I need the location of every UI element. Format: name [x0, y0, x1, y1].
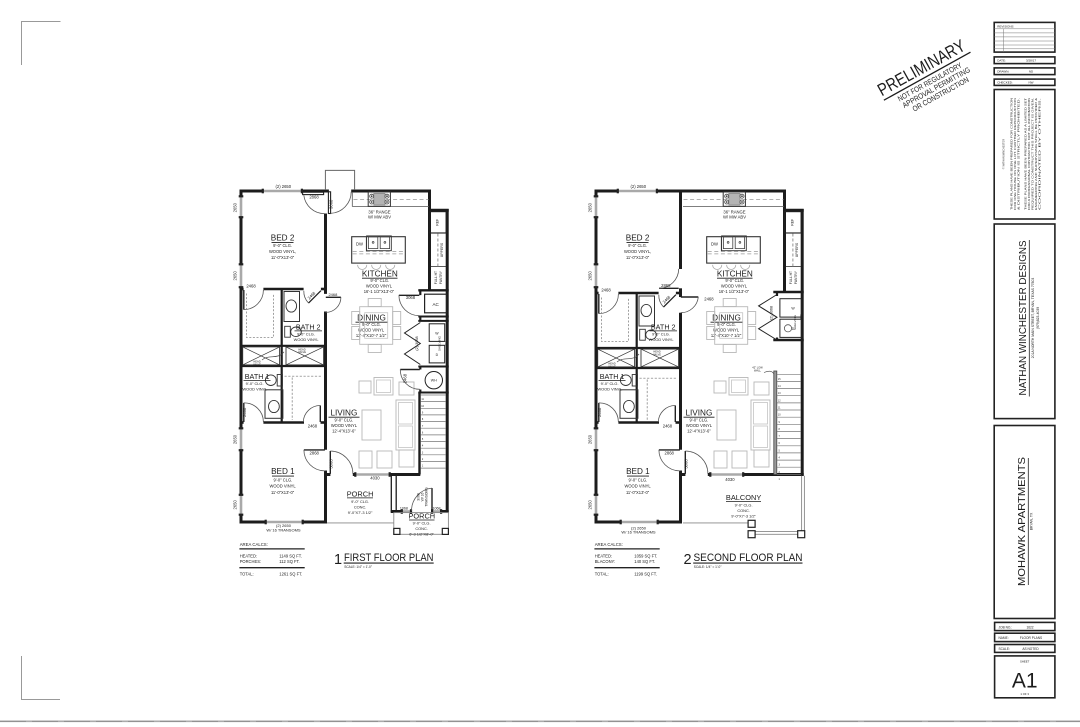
svg-text:2650: 2650	[588, 270, 593, 280]
svg-text:SCALE: 1/4" = 1'-0": SCALE: 1/4" = 1'-0"	[694, 565, 722, 569]
svg-text:BATH 2: BATH 2	[296, 322, 321, 331]
svg-text:AS NOTED: AS NOTED	[1022, 647, 1039, 651]
svg-text:WOOD VINYL: WOOD VINYL	[721, 284, 748, 289]
svg-text:BED 1: BED 1	[626, 467, 650, 476]
svg-text:MOHAWK APARTMENTS: MOHAWK APARTMENTS	[1017, 457, 1028, 586]
svg-text:2868: 2868	[665, 450, 675, 455]
svg-text:9'-0" CLG.: 9'-0" CLG.	[297, 331, 315, 336]
svg-text:W/ 16 TRANSOMS: W/ 16 TRANSOMS	[621, 530, 655, 535]
svg-text:SCALE: 1/4" = 1'-0": SCALE: 1/4" = 1'-0"	[344, 565, 372, 569]
svg-text:9'-0" CLG.: 9'-0" CLG.	[628, 243, 647, 248]
svg-text:4030: 4030	[725, 477, 735, 482]
svg-text:(2) 2650: (2) 2650	[275, 184, 291, 189]
svg-text:WOOD VINYL: WOOD VINYL	[358, 328, 385, 333]
svg-text:BED 2: BED 2	[626, 234, 650, 243]
svg-text:2650: 2650	[233, 270, 238, 280]
svg-text:DW: DW	[356, 241, 363, 246]
svg-text:SCALE:: SCALE:	[999, 647, 1010, 651]
svg-text:1261 SQ FT.: 1261 SQ FT.	[279, 571, 302, 576]
svg-text:WALL: WALL	[754, 368, 762, 372]
svg-text:(2) 3068: (2) 3068	[770, 306, 774, 320]
svg-text:9'-0" CLG.: 9'-0" CLG.	[273, 477, 292, 482]
svg-text:2468: 2468	[704, 296, 714, 301]
svg-text:9'-0"X7'-3 1/2": 9'-0"X7'-3 1/2"	[731, 513, 756, 518]
svg-text:2'6": 2'6"	[444, 341, 448, 346]
svg-text:2650: 2650	[588, 434, 593, 444]
svg-text:WOOD VINYL: WOOD VINYL	[242, 387, 268, 392]
svg-text:REF: REF	[436, 219, 440, 226]
svg-text:1068: 1068	[433, 506, 441, 510]
svg-text:BED 2: BED 2	[271, 234, 295, 243]
svg-text:WOOD VINYL: WOOD VINYL	[597, 387, 623, 392]
svg-text:12'-4"X10'-7 1/2": 12'-4"X10'-7 1/2"	[356, 333, 387, 338]
svg-text:3068: 3068	[683, 459, 688, 469]
svg-text:3068: 3068	[328, 459, 333, 469]
svg-text:2868: 2868	[661, 283, 671, 288]
svg-text:AC: AC	[432, 302, 439, 307]
svg-text:BED 1: BED 1	[271, 467, 295, 476]
svg-text:TOTAL:: TOTAL:	[595, 571, 609, 576]
svg-text:2468: 2468	[308, 423, 318, 428]
svg-text:11'-0"X13'-0": 11'-0"X13'-0"	[271, 255, 295, 260]
svg-text:2468: 2468	[328, 292, 338, 297]
svg-text:PANTRY: PANTRY	[794, 270, 798, 284]
svg-text:3068: 3068	[406, 295, 416, 300]
svg-text:WOOD VINYL: WOOD VINYL	[331, 423, 358, 428]
svg-text:WOOD VINYL,: WOOD VINYL,	[624, 249, 651, 254]
svg-text:11'-0"X13'-0": 11'-0"X13'-0"	[626, 490, 650, 495]
svg-text:WOOD VINYL: WOOD VINYL	[625, 484, 652, 489]
svg-text:9'-0" CLG.: 9'-0" CLG.	[413, 521, 431, 526]
svg-text:FLOOR PLANS: FLOOR PLANS	[1020, 636, 1042, 640]
svg-text:2650: 2650	[233, 499, 238, 509]
svg-text:SHELVING: SHELVING	[438, 335, 442, 351]
svg-text:BALCONY: BALCONY	[726, 493, 761, 502]
svg-text:DATE:: DATE:	[997, 59, 1006, 63]
svg-text:PANTRY: PANTRY	[439, 270, 443, 284]
svg-text:9'-0" CLG.: 9'-0" CLG.	[628, 477, 647, 482]
svg-text:1199 SQ FT.: 1199 SQ FT.	[634, 571, 657, 576]
svg-text:1059 SQ FT.: 1059 SQ FT.	[634, 554, 657, 559]
svg-text:VALVE: VALVE	[298, 350, 306, 354]
svg-text:BATH 1: BATH 1	[245, 372, 270, 381]
svg-text:WOOD VINYL: WOOD VINYL	[649, 337, 675, 342]
svg-text:3/28/17: 3/28/17	[1026, 59, 1036, 63]
svg-text:FULL HT: FULL HT	[789, 271, 793, 284]
svg-text:UPPERS: UPPERS	[795, 242, 799, 257]
svg-text:& DISTRIBUTION IS STRICTLY PRO: & DISTRIBUTION IS STRICTLY PROHIBITED.	[1018, 97, 1021, 210]
svg-text:(2) 3068: (2) 3068	[415, 336, 419, 350]
svg-text:9'-0" CLG.: 9'-0" CLG.	[273, 243, 292, 248]
svg-text:WOOD VINYL: WOOD VINYL	[366, 284, 393, 289]
svg-text:DINING: DINING	[712, 313, 741, 322]
svg-text:9'-0"X7'-3 1/2": 9'-0"X7'-3 1/2"	[348, 510, 373, 515]
svg-text:BLACONY:: BLACONY:	[595, 559, 615, 564]
svg-text:(2) 2650: (2) 2650	[630, 184, 646, 189]
svg-text:2468: 2468	[597, 407, 602, 417]
svg-text:9'-0" CLG.: 9'-0" CLG.	[725, 278, 744, 283]
svg-text:REVISIONS: REVISIONS	[997, 25, 1013, 29]
svg-text:4030: 4030	[370, 475, 380, 480]
svg-text:DINING: DINING	[357, 313, 386, 322]
svg-text:LIVING: LIVING	[685, 408, 712, 417]
svg-text:UPPERS: UPPERS	[440, 242, 444, 257]
svg-text:© NATHAN WINCHESTER: © NATHAN WINCHESTER	[1003, 139, 1006, 169]
svg-text:WOOD VINYL: WOOD VINYL	[270, 484, 297, 489]
svg-text:HEATED:: HEATED:	[240, 554, 257, 559]
svg-text:12'-4"X13'-6": 12'-4"X13'-6"	[687, 428, 711, 433]
svg-text:BATH 1: BATH 1	[600, 372, 625, 381]
svg-text:2868: 2868	[310, 450, 320, 455]
svg-text:2'6": 2'6"	[799, 314, 803, 319]
svg-text:VALVE: VALVE	[653, 352, 661, 356]
svg-text:9'-0" CLG.: 9'-0" CLG.	[334, 417, 353, 422]
svg-text:SHELVING: SHELVING	[793, 314, 797, 330]
svg-text:BATH 2: BATH 2	[651, 322, 676, 331]
svg-text:JOB NO.:: JOB NO.:	[999, 625, 1013, 629]
svg-text:CHECKED:: CHECKED:	[997, 81, 1013, 85]
svg-text:WOOD VINYL: WOOD VINYL	[686, 423, 713, 428]
svg-text:3068: 3068	[328, 199, 333, 209]
svg-text:KITCHEN: KITCHEN	[717, 269, 753, 278]
svg-text:PORCHES:: PORCHES:	[240, 559, 261, 564]
svg-text:DW: DW	[711, 241, 718, 246]
svg-text:NAME:: NAME:	[999, 636, 1009, 640]
svg-text:1068: 1068	[400, 506, 408, 510]
svg-text:W/ MW ABV: W/ MW ABV	[723, 215, 746, 220]
svg-text:2650: 2650	[233, 202, 238, 212]
svg-text:AREA CALCS:: AREA CALCS:	[240, 542, 268, 547]
svg-text:W/ 16 TRANSOMS: W/ 16 TRANSOMS	[266, 527, 300, 532]
svg-text:1149 SQ FT.: 1149 SQ FT.	[279, 554, 302, 559]
svg-text:2650: 2650	[233, 434, 238, 444]
svg-text:1: 1	[334, 552, 342, 568]
svg-text:16'-1 1/2"X13'-0": 16'-1 1/2"X13'-0"	[719, 289, 750, 294]
svg-text:REF: REF	[791, 219, 795, 226]
svg-text:2468: 2468	[402, 373, 407, 383]
svg-text:11'-0"X13'-0": 11'-0"X13'-0"	[271, 490, 295, 495]
svg-text:LIVING: LIVING	[330, 408, 357, 417]
svg-text:VALVE: VALVE	[253, 362, 261, 366]
svg-text:SHEET: SHEET	[1020, 660, 1030, 664]
svg-text:A1: A1	[1012, 670, 1038, 693]
svg-text:VALVE: VALVE	[608, 364, 616, 368]
svg-text:W/ MW ABV: W/ MW ABV	[368, 215, 391, 220]
svg-text:112 SQ FT.: 112 SQ FT.	[279, 559, 299, 564]
svg-text:2468: 2468	[246, 284, 256, 289]
svg-text:9'-0" CLG.: 9'-0" CLG.	[246, 381, 264, 386]
svg-text:9'-0" CLG.: 9'-0" CLG.	[689, 417, 708, 422]
svg-text:PORCH: PORCH	[408, 511, 435, 520]
svg-text:CONC.: CONC.	[737, 508, 750, 513]
svg-text:2: 2	[684, 552, 692, 568]
svg-text:SECOND FLOOR PLAN: SECOND FLOOR PLAN	[694, 552, 803, 564]
svg-text:1 OF 3: 1 OF 3	[1020, 692, 1029, 696]
svg-text:WOOD VINYL,: WOOD VINYL,	[269, 249, 296, 254]
svg-text:2468: 2468	[663, 423, 673, 428]
svg-text:COORDINATED BY OTHERS.: COORDINATED BY OTHERS.	[1039, 97, 1042, 210]
svg-text:9'-0" CLG.: 9'-0" CLG.	[601, 381, 619, 386]
svg-text:AREA CALCS:: AREA CALCS:	[595, 542, 623, 547]
svg-text:NW: NW	[1029, 81, 1034, 85]
svg-text:TOTAL:: TOTAL:	[240, 571, 254, 576]
svg-text:6'-3 1/2"X8'-0": 6'-3 1/2"X8'-0"	[409, 532, 434, 537]
svg-text:11'-0"X13'-0": 11'-0"X13'-0"	[626, 255, 650, 260]
svg-text:12'-4"X10'-7 1/2": 12'-4"X10'-7 1/2"	[711, 333, 742, 338]
svg-text:DRAWN:: DRAWN:	[997, 70, 1009, 74]
svg-text:PORCH: PORCH	[347, 489, 374, 498]
svg-text:12'-4"X13'-6": 12'-4"X13'-6"	[332, 428, 356, 433]
svg-text:2868: 2868	[309, 194, 319, 199]
svg-text:HEATED:: HEATED:	[595, 554, 612, 559]
svg-text:(979)823-4039: (979)823-4039	[1036, 307, 1040, 329]
svg-text:2468: 2468	[601, 288, 611, 293]
svg-text:16'-1 1/2"X13'-0": 16'-1 1/2"X13'-0"	[364, 289, 395, 294]
svg-text:9'-0" CLG.: 9'-0" CLG.	[370, 278, 389, 283]
svg-text:TRANSOMS: TRANSOMS	[425, 487, 429, 507]
svg-text:140 SQ FT.: 140 SQ FT.	[634, 559, 655, 564]
svg-text:CONC.: CONC.	[354, 505, 367, 510]
svg-text:WH: WH	[431, 379, 437, 383]
svg-text:9'-0" CLG.: 9'-0" CLG.	[351, 499, 369, 504]
svg-text:1622: 1622	[1026, 625, 1033, 629]
svg-text:2650: 2650	[588, 202, 593, 212]
svg-text:KITCHEN: KITCHEN	[362, 269, 398, 278]
svg-text:2468: 2468	[242, 407, 247, 417]
svg-text:BRYAN, TX: BRYAN, TX	[1030, 512, 1034, 530]
svg-text:WOOD VINYL: WOOD VINYL	[713, 328, 740, 333]
svg-text:CONC.: CONC.	[415, 526, 428, 531]
svg-text:201A NORTH MAIN STREET, BRYAN,: 201A NORTH MAIN STREET, BRYAN, TEXAS 778…	[1031, 278, 1035, 359]
svg-text:9'-0" CLG.: 9'-0" CLG.	[652, 331, 670, 336]
svg-text:WOOD VINYL: WOOD VINYL	[294, 337, 320, 342]
svg-text:2650: 2650	[588, 499, 593, 509]
svg-text:9'-0" CLG.: 9'-0" CLG.	[735, 502, 753, 507]
svg-text:NATHAN WINCHESTER DESIGNS: NATHAN WINCHESTER DESIGNS	[1018, 240, 1029, 395]
svg-text:FIRST FLOOR PLAN: FIRST FLOOR PLAN	[344, 552, 434, 564]
svg-text:FULL HT: FULL HT	[434, 271, 438, 284]
